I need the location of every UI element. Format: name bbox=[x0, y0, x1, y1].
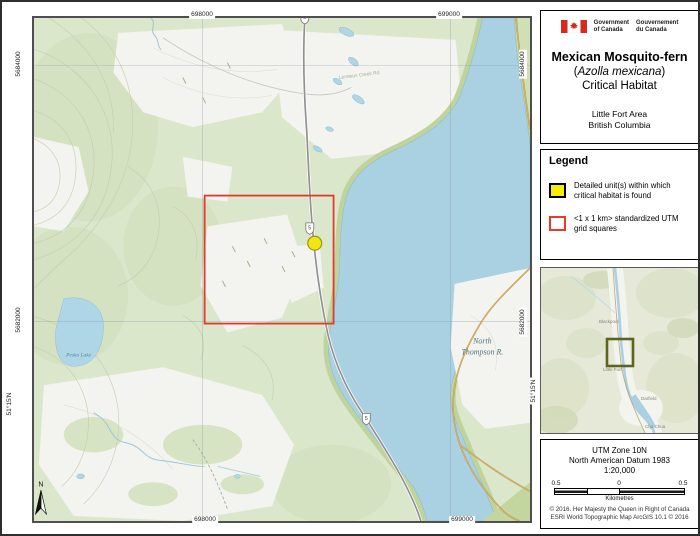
northing-right-5682000: 5682000 bbox=[519, 307, 527, 336]
legend-box: Legend Detailed unit(s) within which cri… bbox=[540, 149, 699, 260]
northing-left-5684000: 5684000 bbox=[15, 49, 23, 78]
datum-text: North American Datum 1983 bbox=[541, 456, 698, 466]
river-label-line2: Thompson R. bbox=[461, 347, 503, 356]
shield-number: 5 bbox=[308, 225, 311, 231]
inset-label-1: Little Fort bbox=[603, 367, 623, 372]
north-letter: N bbox=[38, 481, 43, 488]
copyright-line1: © 2016. Her Majesty the Queen in Right o… bbox=[541, 506, 698, 514]
map-sheet: North Thompson R. Peska Lake Lemieux Cre… bbox=[0, 0, 700, 536]
highway-shield-mid: 5 bbox=[306, 223, 314, 234]
scalebar-labels: 0.5 0 0.5 bbox=[554, 480, 685, 488]
river-label-line1: North bbox=[472, 336, 492, 345]
legend-swatch-yellow bbox=[549, 183, 566, 198]
scalebar: 0.5 0 0.5 Kilometres bbox=[554, 480, 685, 502]
shield-number: 5 bbox=[365, 416, 368, 422]
legend-heading: Legend bbox=[549, 155, 690, 167]
scalebar-unit: Kilometres bbox=[554, 496, 685, 502]
easting-top-699000: 699000 bbox=[436, 11, 462, 19]
inset-locator-map: Blackpool Little Fort Darfield Chu Chua bbox=[540, 267, 699, 434]
map-title: Mexican Mosquito-fern (Azolla mexicana) … bbox=[541, 50, 698, 93]
main-map-canvas: North Thompson R. Peska Lake Lemieux Cre… bbox=[34, 18, 530, 521]
scalebar-label-left: 0.5 bbox=[551, 480, 560, 487]
subtitle-area: Little Fort Area bbox=[541, 109, 698, 120]
scale-ratio-text: 1:20,000 bbox=[541, 466, 698, 476]
title-species-latin: (Azolla mexicana) bbox=[541, 65, 698, 79]
wordmark-english: Government of Canada bbox=[594, 20, 629, 34]
subtitle-province: British Columbia bbox=[541, 120, 698, 131]
critical-habitat-unit bbox=[308, 236, 322, 250]
inset-label-3: Chu Chua bbox=[645, 424, 666, 429]
shield-number: 5 bbox=[303, 18, 306, 21]
scalebar-bar bbox=[554, 488, 685, 495]
wordmark-french: Gouvernement du Canada bbox=[636, 20, 678, 34]
northing-left-5682000: 5682000 bbox=[15, 305, 23, 334]
legend-item-habitat-unit: Detailed unit(s) within which critical h… bbox=[549, 181, 690, 200]
scalebar-label-center: 0 bbox=[617, 480, 621, 487]
projection-scale-box: UTM Zone 10N North American Datum 1983 1… bbox=[540, 439, 699, 529]
easting-bottom-699000: 699000 bbox=[449, 516, 475, 524]
copyright-line2: ESRI World Topographic Map ArcGIS 10.1 ©… bbox=[541, 514, 698, 522]
canada-wordmark: Government of Canada Gouvernement du Can… bbox=[541, 20, 698, 34]
scalebar-label-right: 0.5 bbox=[678, 480, 687, 487]
map-subtitle: Little Fort Area British Columbia bbox=[541, 109, 698, 130]
copyright: © 2016. Her Majesty the Queen in Right o… bbox=[541, 506, 698, 521]
main-map: North Thompson R. Peska Lake Lemieux Cre… bbox=[32, 16, 532, 523]
legend-item-habitat-text: Detailed unit(s) within which critical h… bbox=[574, 181, 690, 200]
highway-shield-bottom: 5 bbox=[362, 413, 370, 424]
northing-right-5684000: 5684000 bbox=[519, 49, 527, 78]
inset-label-0: Blackpool bbox=[599, 319, 619, 324]
legend-item-grid-square: <1 x 1 km> standardized UTM grid squares bbox=[549, 214, 690, 233]
legend-swatch-red bbox=[549, 216, 566, 231]
title-critical-habitat: Critical Habitat bbox=[541, 79, 698, 93]
inset-label-2: Darfield bbox=[641, 396, 657, 401]
title-species-common: Mexican Mosquito-fern bbox=[541, 50, 698, 65]
easting-bottom-698000: 698000 bbox=[192, 516, 218, 524]
latitude-right: 51°15'N bbox=[530, 378, 538, 405]
inset-canvas: Blackpool Little Fort Darfield Chu Chua bbox=[541, 268, 698, 433]
latitude-left: 51°15'N bbox=[6, 391, 14, 418]
title-box: Government of Canada Gouvernement du Can… bbox=[540, 10, 699, 144]
canada-flag-icon bbox=[561, 20, 587, 33]
utm-zone-text: UTM Zone 10N bbox=[541, 446, 698, 456]
easting-top-698000: 698000 bbox=[189, 11, 215, 19]
legend-item-grid-text: <1 x 1 km> standardized UTM grid squares bbox=[574, 214, 690, 233]
lake-label: Peska Lake bbox=[65, 352, 91, 358]
